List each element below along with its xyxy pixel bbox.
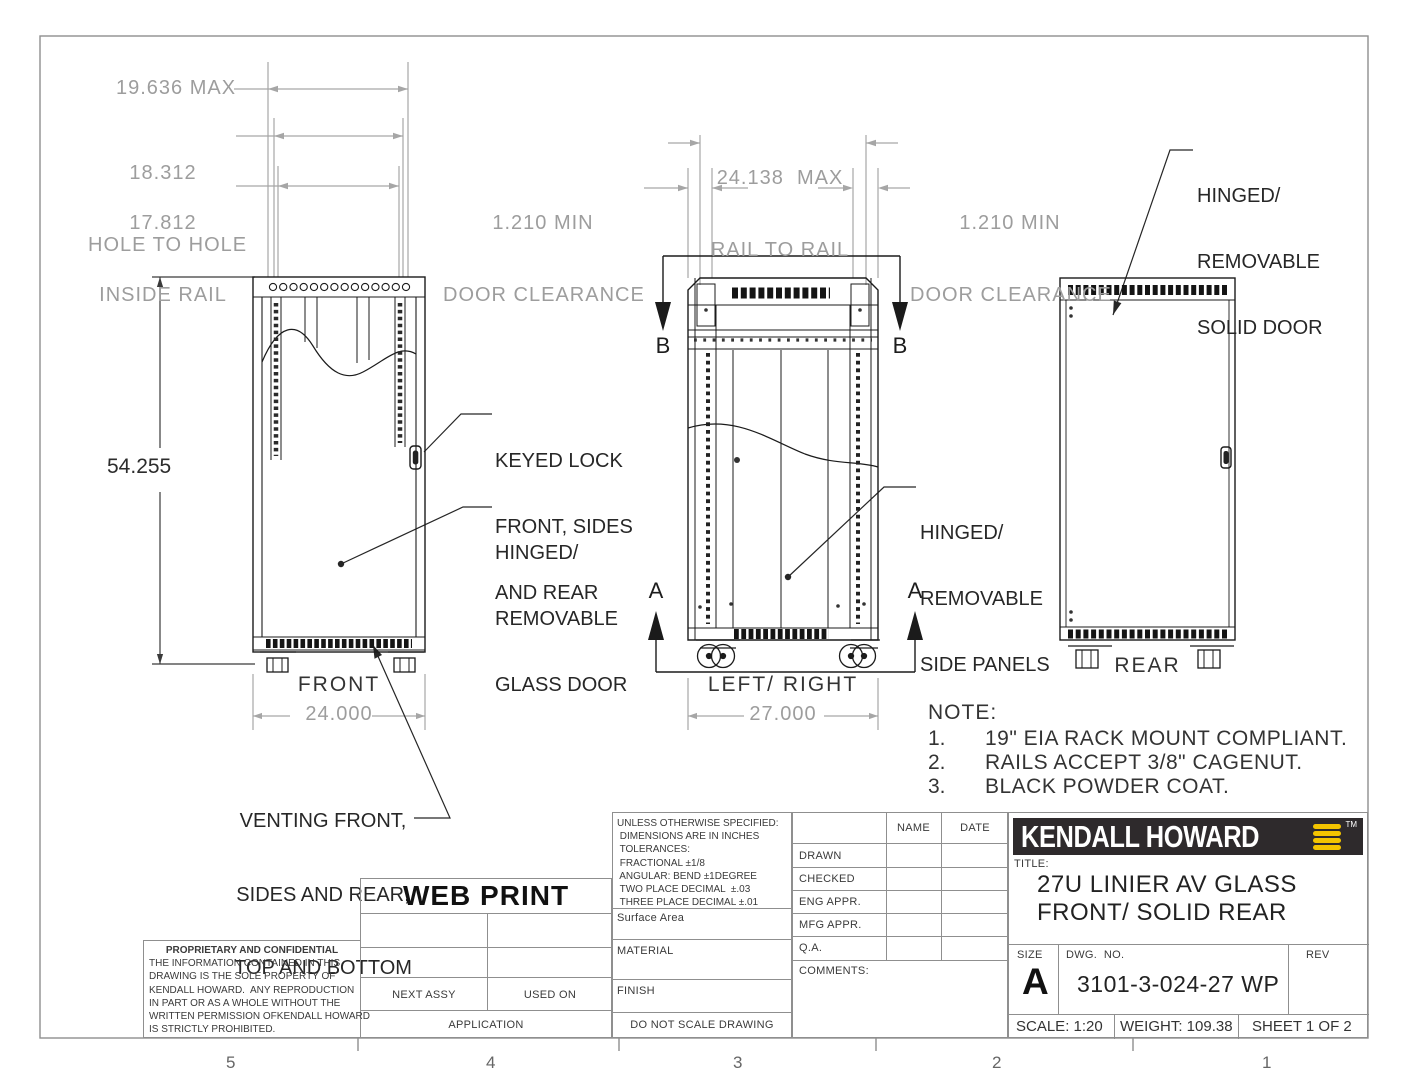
rev-label: REV	[1306, 949, 1330, 961]
note-2-number: 2.	[928, 751, 946, 774]
tolerance-block: UNLESS OTHERWISE SPECIFIED: DIMENSIONS A…	[612, 812, 792, 1038]
proprietary-line-5: WRITTEN PERMISSION OFKENDALL HOWARD	[149, 1010, 355, 1023]
surface-area-field: Surface Area	[613, 909, 791, 940]
name-column-header: NAME	[886, 813, 941, 843]
proprietary-line-1: THE INFORMATION CONTAINED IN THIS	[149, 957, 355, 970]
checked-row-label: CHECKED	[799, 873, 855, 885]
tolerance-spec: UNLESS OTHERWISE SPECIFIED: DIMENSIONS A…	[613, 813, 791, 909]
proprietary-line-4: IN PART OR AS A WHOLE WITHOUT THE	[149, 997, 355, 1010]
section-a-left-label: A	[641, 578, 671, 604]
tolerance-line-4: FRACTIONAL ±1/8	[617, 857, 787, 870]
scale-value: SCALE: 1:20	[1016, 1018, 1103, 1035]
qa-row-label: Q.A.	[799, 942, 822, 954]
drawn-row-label: DRAWN	[799, 850, 842, 862]
zone-number-1: 1	[1262, 1053, 1271, 1073]
dim-front-width: 24.000	[253, 703, 425, 726]
dim-height: 54.255	[104, 455, 174, 479]
note-item-3: 3. BLACK POWDER COAT.	[928, 775, 1229, 799]
application-table: WEB PRINT NEXT ASSY USED ON APPLICATION	[360, 878, 612, 1038]
proprietary-notice: PROPRIETARY AND CONFIDENTIAL THE INFORMA…	[143, 940, 361, 1038]
tolerance-line-1: UNLESS OTHERWISE SPECIFIED:	[617, 817, 787, 830]
side-view	[688, 278, 880, 668]
note-heading: NOTE:	[928, 701, 997, 725]
trademark-symbol: TM	[1345, 820, 1357, 829]
date-column-header: DATE	[941, 813, 1009, 843]
kendall-howard-logo: KENDALL HOWARD TM	[1013, 818, 1363, 855]
rear-view-label: REAR	[1060, 654, 1235, 678]
side-dots	[698, 308, 866, 609]
do-not-scale-label: DO NOT SCALE DRAWING	[613, 1013, 791, 1037]
dwg-no-value: 3101-3-024-27 WP	[1077, 971, 1279, 998]
dim-door-clearance-left: 1.210 MIN DOOR CLEARANCE	[443, 163, 643, 331]
stacked-bars-icon	[1313, 822, 1341, 851]
drawing-sheet: 19.636 MAX 18.312 HOLE TO HOLE 17.812 IN…	[0, 0, 1408, 1088]
tolerance-line-7: THREE PLACE DECIMAL ±.01	[617, 896, 787, 909]
material-field: MATERIAL	[613, 940, 791, 980]
rear-lock	[1221, 447, 1231, 468]
size-label: SIZE	[1017, 949, 1043, 961]
callout-glass-door: HINGED/ REMOVABLE GLASS DOOR	[495, 498, 627, 718]
application-empty-row-1	[361, 914, 611, 948]
finish-field: FINISH	[613, 980, 791, 1013]
application-label: APPLICATION	[361, 1011, 611, 1038]
drawing-title-line-2: FRONT/ SOLID REAR	[1037, 899, 1287, 926]
weight-value: WEIGHT: 109.38	[1120, 1018, 1233, 1035]
dim-inside-rail: 17.812 INSIDE RAIL	[88, 163, 238, 331]
note-item-1: 1. 19" EIA RACK MOUNT COMPLIANT.	[928, 727, 1347, 751]
zone-number-4: 4	[486, 1053, 495, 1073]
section-b-right-label: B	[885, 333, 915, 359]
dim-side-depth: 27.000	[688, 703, 878, 726]
used-on-label: USED ON	[487, 978, 613, 1011]
note-2-text: RAILS ACCEPT 3/8" CAGENUT.	[985, 751, 1303, 774]
front-casters	[260, 652, 424, 672]
tolerance-line-3: TOLERANCES:	[617, 843, 787, 856]
application-empty-row-2	[361, 948, 611, 978]
front-view-label: FRONT	[253, 673, 425, 697]
zone-number-2: 2	[992, 1053, 1001, 1073]
side-casters	[696, 640, 880, 668]
proprietary-line-6: IS STRICTLY PROHIBITED.	[149, 1023, 355, 1036]
proprietary-line-3: KENDALL HOWARD. ANY REPRODUCTION	[149, 984, 355, 997]
proprietary-line-2: DRAWING IS THE SOLE PROPERTY OF	[149, 970, 355, 983]
logo-wordmark: KENDALL HOWARD	[1021, 819, 1259, 855]
next-assy-label: NEXT ASSY	[361, 978, 487, 1011]
sheet-value: SHEET 1 OF 2	[1252, 1018, 1352, 1035]
tolerance-line-2: DIMENSIONS ARE IN INCHES	[617, 830, 787, 843]
drawing-title-line-1: 27U LINIER AV GLASS	[1037, 871, 1297, 898]
note-3-text: BLACK POWDER COAT.	[985, 775, 1229, 798]
note-1-number: 1.	[928, 727, 946, 750]
callout-solid-door: HINGED/ REMOVABLE SOLID DOOR	[1197, 141, 1323, 361]
dim-door-clearance-right: 1.210 MIN DOOR CLEARANCE	[910, 163, 1110, 331]
rear-dots	[1069, 306, 1073, 622]
tolerance-line-6: TWO PLACE DECIMAL ±.03	[617, 883, 787, 896]
web-print-stamp: WEB PRINT	[361, 879, 611, 914]
proprietary-heading: PROPRIETARY AND CONFIDENTIAL	[149, 944, 355, 957]
zone-number-5: 5	[226, 1053, 235, 1073]
dim-max-width: 19.636 MAX	[116, 77, 236, 100]
approvals-table: NAME DATE DRAWN CHECKED ENG APPR. MFG AP…	[792, 812, 1008, 1038]
title-label: TITLE:	[1014, 858, 1049, 870]
eng-appr-row-label: ENG APPR.	[799, 896, 861, 908]
dim-rail-to-rail: 24.138 MAX RAIL TO RAIL	[710, 118, 850, 286]
note-item-2: 2. RAILS ACCEPT 3/8" CAGENUT.	[928, 751, 1303, 775]
front-view	[253, 277, 425, 672]
section-b-left-label: B	[648, 333, 678, 359]
dwg-no-label: DWG. NO.	[1066, 949, 1124, 961]
callout-side-panels: HINGED/ REMOVABLE SIDE PANELS	[920, 478, 1050, 698]
side-view-label: LEFT/ RIGHT	[688, 673, 878, 697]
note-3-number: 3.	[928, 775, 946, 798]
size-value: A	[1022, 961, 1049, 1003]
tolerance-line-5: ANGULAR: BEND ±1DEGREE	[617, 870, 787, 883]
section-arrowheads	[648, 302, 923, 640]
note-1-text: 19" EIA RACK MOUNT COMPLIANT.	[985, 727, 1347, 750]
zone-number-3: 3	[733, 1053, 742, 1073]
comments-label: COMMENTS:	[799, 965, 869, 977]
title-info-block: KENDALL HOWARD TM TITLE: 27U LINIER AV G…	[1008, 812, 1368, 1038]
mfg-appr-row-label: MFG APPR.	[799, 919, 862, 931]
application-header-row: NEXT ASSY USED ON	[361, 978, 611, 1011]
front-vent-holes	[269, 283, 409, 290]
